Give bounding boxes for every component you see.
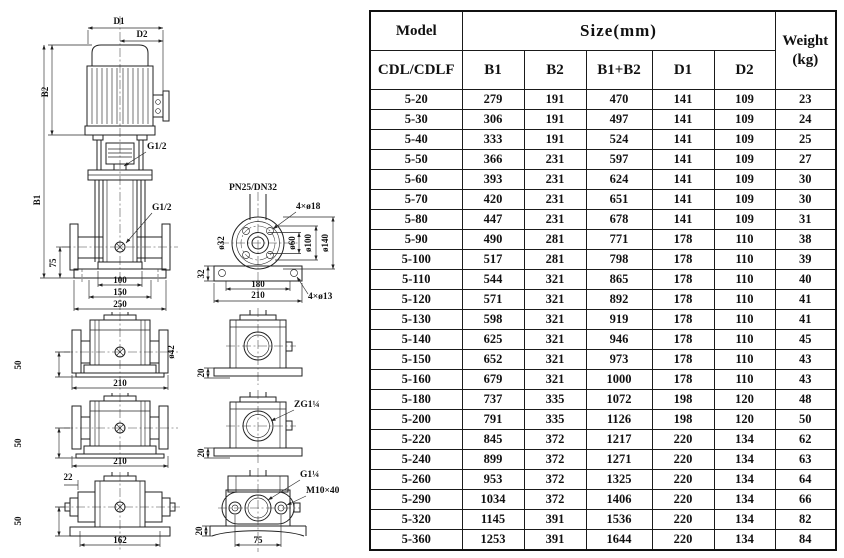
table-row: 5-6039323162414110930 xyxy=(370,170,836,190)
value-cell: 1325 xyxy=(586,470,652,490)
value-cell: 652 xyxy=(462,350,524,370)
value-cell: 678 xyxy=(586,210,652,230)
value-cell: 178 xyxy=(652,230,714,250)
value-cell: 524 xyxy=(586,130,652,150)
model-cell: 5-70 xyxy=(370,190,462,210)
value-cell: 109 xyxy=(714,210,775,230)
model-cell: 5-180 xyxy=(370,390,462,410)
pump-dimension-sheet: D1 D2 B2 B1 75 G1/2 G1/2 xyxy=(0,0,844,558)
flange-top-view: PN25/DN32 4×ø18 ø32 ø60 xyxy=(196,183,335,303)
table-row: 5-160679321100017811043 xyxy=(370,370,836,390)
value-cell: 372 xyxy=(524,450,586,470)
table-row: 5-4033319152414110925 xyxy=(370,130,836,150)
value-cell: 64 xyxy=(775,470,836,490)
value-cell: 134 xyxy=(714,530,775,551)
value-cell: 321 xyxy=(524,330,586,350)
table-row: 5-240899372127122013463 xyxy=(370,450,836,470)
value-cell: 679 xyxy=(462,370,524,390)
label-dia42: ø42 xyxy=(166,345,176,359)
model-cell: 5-30 xyxy=(370,110,462,130)
model-cell: 5-290 xyxy=(370,490,462,510)
value-cell: 625 xyxy=(462,330,524,350)
dim-162: 162 xyxy=(113,535,127,545)
model-cell: 5-200 xyxy=(370,410,462,430)
value-cell: 109 xyxy=(714,130,775,150)
value-cell: 141 xyxy=(652,210,714,230)
value-cell: 1072 xyxy=(586,390,652,410)
value-cell: 63 xyxy=(775,450,836,470)
value-cell: 973 xyxy=(586,350,652,370)
value-cell: 1000 xyxy=(586,370,652,390)
pump-drawing: D1 D2 B2 B1 75 G1/2 G1/2 xyxy=(0,0,368,558)
value-cell: 25 xyxy=(775,130,836,150)
value-cell: 30 xyxy=(775,190,836,210)
value-cell: 497 xyxy=(586,110,652,130)
model-cell: 5-20 xyxy=(370,90,462,110)
value-cell: 624 xyxy=(586,170,652,190)
value-cell: 845 xyxy=(462,430,524,450)
value-cell: 1406 xyxy=(586,490,652,510)
dimension-table-wrap: Model Size(mm) Weight (kg) CDL/CDLF B1 B… xyxy=(369,10,837,551)
value-cell: 447 xyxy=(462,210,524,230)
value-cell: 366 xyxy=(462,150,524,170)
value-cell: 1644 xyxy=(586,530,652,551)
table-row: 5-2027919147014110923 xyxy=(370,90,836,110)
header-col-d1: D1 xyxy=(652,51,714,90)
table-row: 5-3030619149714110924 xyxy=(370,110,836,130)
value-cell: 231 xyxy=(524,190,586,210)
value-cell: 84 xyxy=(775,530,836,551)
value-cell: 43 xyxy=(775,350,836,370)
table-row: 5-11054432186517811040 xyxy=(370,270,836,290)
value-cell: 178 xyxy=(652,350,714,370)
value-cell: 110 xyxy=(714,290,775,310)
value-cell: 141 xyxy=(652,130,714,150)
drawing-panel: D1 D2 B2 B1 75 G1/2 G1/2 xyxy=(0,0,368,558)
model-cell: 5-150 xyxy=(370,350,462,370)
dim-20-b: 20 xyxy=(196,448,206,458)
table-row: 5-9049028177117811038 xyxy=(370,230,836,250)
model-cell: 5-140 xyxy=(370,330,462,350)
header-model-sub: CDL/CDLF xyxy=(370,51,462,90)
value-cell: 544 xyxy=(462,270,524,290)
section-view-2: ZG1¼ 20 xyxy=(196,390,320,465)
model-cell: 5-320 xyxy=(370,510,462,530)
dim-50-a: 50 xyxy=(13,360,23,370)
side-view-3: 22 50 162 xyxy=(13,472,180,552)
value-cell: 953 xyxy=(462,470,524,490)
value-cell: 335 xyxy=(524,390,586,410)
label-dia32: ø32 xyxy=(216,236,226,250)
value-cell: 798 xyxy=(586,250,652,270)
dim-250: 250 xyxy=(113,299,127,309)
value-cell: 306 xyxy=(462,110,524,130)
model-cell: 5-110 xyxy=(370,270,462,290)
dim-50-c: 50 xyxy=(13,516,23,526)
value-cell: 134 xyxy=(714,450,775,470)
value-cell: 1253 xyxy=(462,530,524,551)
value-cell: 321 xyxy=(524,350,586,370)
value-cell: 1126 xyxy=(586,410,652,430)
label-base-holes: 4×ø13 xyxy=(308,292,333,302)
table-row: 5-7042023165114110930 xyxy=(370,190,836,210)
dim-150: 150 xyxy=(113,287,127,297)
value-cell: 178 xyxy=(652,330,714,350)
label-dia60: ø60 xyxy=(287,236,297,250)
table-row: 5-5036623159714110927 xyxy=(370,150,836,170)
table-row: 5-3601253391164422013484 xyxy=(370,530,836,551)
value-cell: 321 xyxy=(524,310,586,330)
value-cell: 66 xyxy=(775,490,836,510)
value-cell: 321 xyxy=(524,270,586,290)
model-cell: 5-40 xyxy=(370,130,462,150)
model-cell: 5-120 xyxy=(370,290,462,310)
value-cell: 30 xyxy=(775,170,836,190)
table-row: 5-14062532194617811045 xyxy=(370,330,836,350)
value-cell: 141 xyxy=(652,190,714,210)
value-cell: 110 xyxy=(714,370,775,390)
value-cell: 279 xyxy=(462,90,524,110)
value-cell: 62 xyxy=(775,430,836,450)
value-cell: 134 xyxy=(714,430,775,450)
table-row: 5-3201145391153622013482 xyxy=(370,510,836,530)
value-cell: 110 xyxy=(714,350,775,370)
value-cell: 43 xyxy=(775,370,836,390)
value-cell: 771 xyxy=(586,230,652,250)
side-view-1: ø42 50 210 xyxy=(13,312,178,392)
value-cell: 109 xyxy=(714,170,775,190)
value-cell: 134 xyxy=(714,470,775,490)
value-cell: 1034 xyxy=(462,490,524,510)
value-cell: 31 xyxy=(775,210,836,230)
dim-180: 180 xyxy=(251,279,265,289)
value-cell: 110 xyxy=(714,330,775,350)
header-size-group: Size(mm) xyxy=(462,11,775,51)
value-cell: 141 xyxy=(652,150,714,170)
value-cell: 372 xyxy=(524,490,586,510)
value-cell: 134 xyxy=(714,510,775,530)
header-weight: Weight (kg) xyxy=(775,11,836,90)
label-g12-mid: G1/2 xyxy=(152,203,172,213)
dim-100: 100 xyxy=(113,275,127,285)
value-cell: 110 xyxy=(714,270,775,290)
value-cell: 598 xyxy=(462,310,524,330)
value-cell: 198 xyxy=(652,410,714,430)
value-cell: 470 xyxy=(586,90,652,110)
value-cell: 23 xyxy=(775,90,836,110)
table-row: 5-10051728179817811039 xyxy=(370,250,836,270)
value-cell: 1271 xyxy=(586,450,652,470)
label-dia140: ø140 xyxy=(320,234,330,253)
value-cell: 40 xyxy=(775,270,836,290)
label-g114: G1¼ xyxy=(300,470,319,480)
model-cell: 5-360 xyxy=(370,530,462,551)
value-cell: 82 xyxy=(775,510,836,530)
value-cell: 1145 xyxy=(462,510,524,530)
value-cell: 198 xyxy=(652,390,714,410)
dim-d2: D2 xyxy=(137,29,148,39)
value-cell: 41 xyxy=(775,310,836,330)
value-cell: 48 xyxy=(775,390,836,410)
value-cell: 178 xyxy=(652,290,714,310)
value-cell: 420 xyxy=(462,190,524,210)
value-cell: 141 xyxy=(652,110,714,130)
value-cell: 231 xyxy=(524,150,586,170)
value-cell: 231 xyxy=(524,170,586,190)
dimension-table: Model Size(mm) Weight (kg) CDL/CDLF B1 B… xyxy=(369,10,837,551)
model-cell: 5-60 xyxy=(370,170,462,190)
label-dia100: ø100 xyxy=(303,234,313,253)
model-cell: 5-240 xyxy=(370,450,462,470)
dim-210-a: 210 xyxy=(113,378,127,388)
dim-210-flange: 210 xyxy=(251,290,265,300)
dim-d1: D1 xyxy=(114,16,125,26)
header-col-d2: D2 xyxy=(714,51,775,90)
header-model: Model xyxy=(370,11,462,51)
value-cell: 110 xyxy=(714,230,775,250)
label-flange-rating: PN25/DN32 xyxy=(229,183,277,193)
header-col-b1b2: B1+B2 xyxy=(586,51,652,90)
table-row: 5-180737335107219812048 xyxy=(370,390,836,410)
model-cell: 5-100 xyxy=(370,250,462,270)
value-cell: 220 xyxy=(652,510,714,530)
value-cell: 333 xyxy=(462,130,524,150)
header-col-b1: B1 xyxy=(462,51,524,90)
value-cell: 393 xyxy=(462,170,524,190)
label-flange-bolt-holes: 4×ø18 xyxy=(296,202,321,212)
table-row: 5-200791335112619812050 xyxy=(370,410,836,430)
value-cell: 39 xyxy=(775,250,836,270)
table-row: 5-15065232197317811043 xyxy=(370,350,836,370)
dim-50-b: 50 xyxy=(13,438,23,448)
model-cell: 5-80 xyxy=(370,210,462,230)
value-cell: 899 xyxy=(462,450,524,470)
value-cell: 919 xyxy=(586,310,652,330)
value-cell: 191 xyxy=(524,110,586,130)
table-row: 5-13059832191917811041 xyxy=(370,310,836,330)
value-cell: 391 xyxy=(524,530,586,551)
value-cell: 120 xyxy=(714,410,775,430)
dim-32: 32 xyxy=(196,269,206,279)
value-cell: 110 xyxy=(714,310,775,330)
value-cell: 110 xyxy=(714,250,775,270)
value-cell: 178 xyxy=(652,310,714,330)
outlet-flange-view: G1¼ M10×40 20 75 xyxy=(194,468,340,552)
model-cell: 5-130 xyxy=(370,310,462,330)
value-cell: 321 xyxy=(524,290,586,310)
value-cell: 651 xyxy=(586,190,652,210)
dim-75: 75 xyxy=(48,258,58,268)
table-row: 5-2901034372140622013466 xyxy=(370,490,836,510)
value-cell: 50 xyxy=(775,410,836,430)
dim-210-b: 210 xyxy=(113,456,127,466)
model-cell: 5-220 xyxy=(370,430,462,450)
value-cell: 220 xyxy=(652,470,714,490)
value-cell: 141 xyxy=(652,170,714,190)
value-cell: 372 xyxy=(524,430,586,450)
value-cell: 737 xyxy=(462,390,524,410)
table-row: 5-220845372121722013462 xyxy=(370,430,836,450)
value-cell: 141 xyxy=(652,90,714,110)
value-cell: 220 xyxy=(652,530,714,551)
value-cell: 1536 xyxy=(586,510,652,530)
value-cell: 220 xyxy=(652,430,714,450)
header-col-b2: B2 xyxy=(524,51,586,90)
value-cell: 220 xyxy=(652,490,714,510)
dim-b2: B2 xyxy=(40,86,50,97)
value-cell: 391 xyxy=(524,510,586,530)
value-cell: 791 xyxy=(462,410,524,430)
value-cell: 191 xyxy=(524,130,586,150)
value-cell: 231 xyxy=(524,210,586,230)
value-cell: 109 xyxy=(714,150,775,170)
value-cell: 41 xyxy=(775,290,836,310)
table-row: 5-12057132189217811041 xyxy=(370,290,836,310)
value-cell: 178 xyxy=(652,250,714,270)
model-cell: 5-160 xyxy=(370,370,462,390)
value-cell: 892 xyxy=(586,290,652,310)
value-cell: 490 xyxy=(462,230,524,250)
value-cell: 109 xyxy=(714,190,775,210)
table-row: 5-260953372132522013464 xyxy=(370,470,836,490)
value-cell: 27 xyxy=(775,150,836,170)
value-cell: 24 xyxy=(775,110,836,130)
value-cell: 946 xyxy=(586,330,652,350)
dim-22: 22 xyxy=(64,472,74,482)
model-cell: 5-260 xyxy=(370,470,462,490)
value-cell: 220 xyxy=(652,450,714,470)
side-view-2: 50 210 xyxy=(13,393,178,468)
value-cell: 134 xyxy=(714,490,775,510)
label-g12-top: G1/2 xyxy=(147,142,167,152)
label-m10x40: M10×40 xyxy=(306,486,340,496)
dim-75-outlet: 75 xyxy=(254,535,264,545)
value-cell: 571 xyxy=(462,290,524,310)
value-cell: 865 xyxy=(586,270,652,290)
value-cell: 109 xyxy=(714,90,775,110)
model-cell: 5-50 xyxy=(370,150,462,170)
model-cell: 5-90 xyxy=(370,230,462,250)
front-view: D1 D2 B2 B1 75 G1/2 G1/2 xyxy=(32,16,178,311)
value-cell: 109 xyxy=(714,110,775,130)
value-cell: 45 xyxy=(775,330,836,350)
value-cell: 38 xyxy=(775,230,836,250)
header-weight-line1: Weight xyxy=(782,33,828,49)
dim-20-c: 20 xyxy=(194,526,204,536)
value-cell: 120 xyxy=(714,390,775,410)
value-cell: 178 xyxy=(652,270,714,290)
section-view-1: 20 xyxy=(196,308,302,385)
header-weight-line2: (kg) xyxy=(792,52,818,68)
value-cell: 178 xyxy=(652,370,714,390)
value-cell: 191 xyxy=(524,90,586,110)
value-cell: 517 xyxy=(462,250,524,270)
value-cell: 597 xyxy=(586,150,652,170)
value-cell: 335 xyxy=(524,410,586,430)
value-cell: 281 xyxy=(524,230,586,250)
table-row: 5-8044723167814110931 xyxy=(370,210,836,230)
label-zg114: ZG1¼ xyxy=(294,400,320,410)
size-table-body: 5-20279191470141109235-30306191497141109… xyxy=(370,90,836,551)
value-cell: 1217 xyxy=(586,430,652,450)
value-cell: 372 xyxy=(524,470,586,490)
dim-20-a: 20 xyxy=(196,368,206,378)
value-cell: 281 xyxy=(524,250,586,270)
value-cell: 321 xyxy=(524,370,586,390)
dim-b1: B1 xyxy=(32,194,42,205)
